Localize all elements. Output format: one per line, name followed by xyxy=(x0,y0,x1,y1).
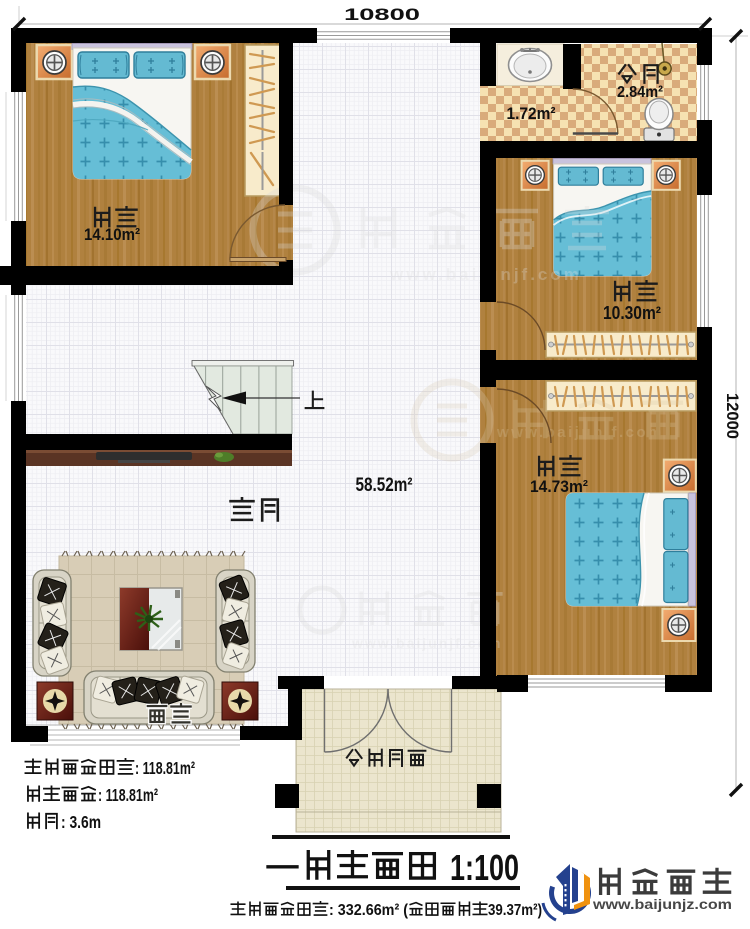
svg-text:www.baijunjz.com: www.baijunjz.com xyxy=(592,896,732,912)
svg-text:: 332.66m² (: : 332.66m² ( xyxy=(329,902,409,919)
svg-text:www.baijunjf.com: www.baijunjf.com xyxy=(496,424,664,441)
svg-text:14.73m²: 14.73m² xyxy=(530,478,588,496)
svg-text:: 3.6m: : 3.6m xyxy=(61,812,101,832)
svg-text:2.84m²: 2.84m² xyxy=(617,84,663,101)
svg-text:58.52m²: 58.52m² xyxy=(356,475,413,496)
svg-text:10800: 10800 xyxy=(344,5,420,24)
svg-text:12000: 12000 xyxy=(723,393,742,439)
svg-text:: 118.81m²: : 118.81m² xyxy=(98,785,158,805)
svg-text:1.72m²: 1.72m² xyxy=(507,105,556,123)
svg-text:: 118.81m²: : 118.81m² xyxy=(135,758,195,778)
svg-text:www.baijunjf.com: www.baijunjf.com xyxy=(351,635,503,651)
svg-text:10.30m²: 10.30m² xyxy=(603,303,661,323)
svg-text:14.10m²: 14.10m² xyxy=(84,226,140,244)
svg-text:1:100: 1:100 xyxy=(450,847,519,888)
svg-text:39.37m²): 39.37m²) xyxy=(488,902,542,919)
